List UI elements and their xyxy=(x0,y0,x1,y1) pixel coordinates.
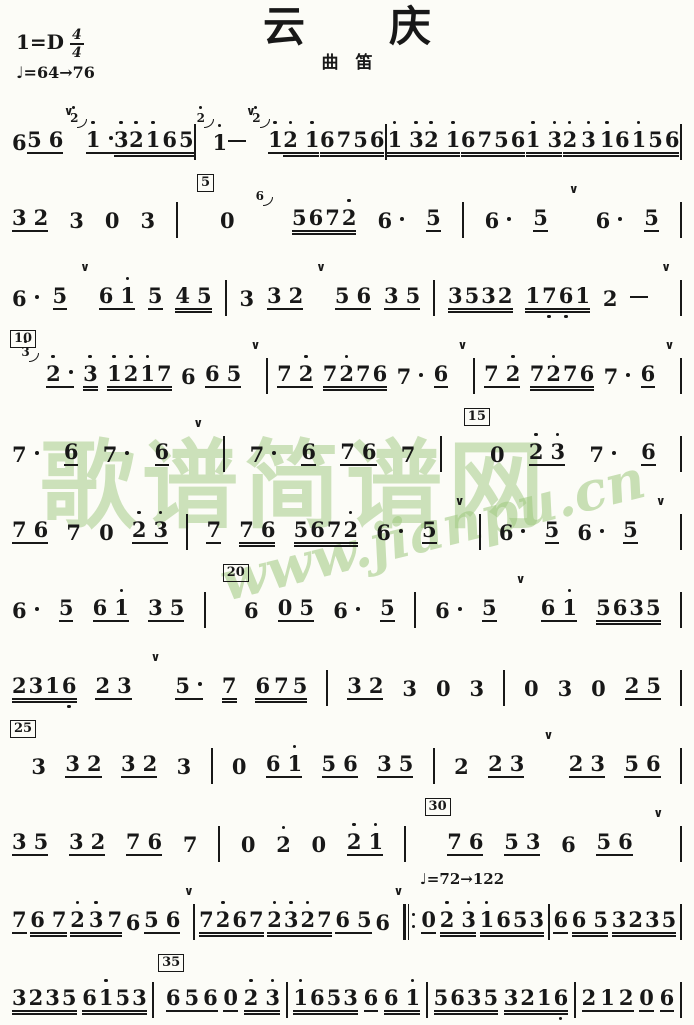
augmentation-dot xyxy=(399,529,403,533)
note-group: 3235 xyxy=(12,986,77,1012)
note-group: 56 xyxy=(27,128,63,154)
note-digit: 6 xyxy=(34,518,49,541)
octave-dot-above xyxy=(88,355,92,359)
note-group: 6 xyxy=(561,833,576,856)
note-digit: 1 xyxy=(406,986,421,1009)
dash-note xyxy=(228,140,246,143)
note-digit: 1 xyxy=(526,128,541,151)
note-group: 56 xyxy=(335,284,371,310)
note-digit: 6 xyxy=(641,440,656,463)
note-group: 6 xyxy=(577,521,605,544)
note-group: 21 xyxy=(424,128,460,154)
note-group: 5 xyxy=(644,206,659,232)
note-group: 7 xyxy=(206,518,221,544)
augmentation-dot xyxy=(626,373,630,377)
note-group: 1 xyxy=(212,131,227,154)
note-digit: 5 xyxy=(662,908,677,931)
barline xyxy=(680,280,682,316)
score-line-9: 253323230615635223∨2356 xyxy=(0,716,694,794)
note-group: 23 xyxy=(569,752,605,778)
barline xyxy=(440,436,442,472)
note-group: 61 xyxy=(384,986,420,1012)
note-group: 1761 xyxy=(525,284,590,310)
note-digit: 5 xyxy=(227,362,242,385)
note-group: 2 xyxy=(454,755,469,778)
note-digit: 6 xyxy=(373,362,388,385)
note-group: 35 xyxy=(148,596,184,622)
note-digit: 6 xyxy=(469,830,484,853)
note-digit: 3 xyxy=(117,674,132,697)
note-digit: 6 xyxy=(618,830,633,853)
augmentation-dot xyxy=(458,607,462,611)
note-group: 6 xyxy=(553,908,568,934)
note-group: 6 xyxy=(126,911,141,934)
note-digit: 1 xyxy=(107,362,122,385)
note-digit: 7 xyxy=(66,521,81,544)
note-group: 1 xyxy=(268,128,283,154)
barline xyxy=(680,982,682,1018)
octave-dot-above xyxy=(254,106,257,109)
score-line-5: 7676∨767671502376 xyxy=(0,404,694,482)
barline xyxy=(204,592,206,628)
note-group: 56 xyxy=(596,830,632,856)
octave-dot-above xyxy=(556,433,560,437)
note-group: 6153 xyxy=(82,986,147,1012)
score-line-2: 3230350656726565∨65 xyxy=(0,170,694,248)
note-digit: 7 xyxy=(542,284,557,307)
note-group: 3 xyxy=(470,677,485,700)
breath-mark-icon: ∨ xyxy=(569,182,579,196)
note-digit: 2 xyxy=(342,206,357,229)
note-digit: 2 xyxy=(603,287,618,310)
note-digit: 5 xyxy=(646,674,661,697)
note-digit: 3 xyxy=(114,128,129,151)
note-digit: 7 xyxy=(325,206,340,229)
note-group: 53 xyxy=(504,830,540,856)
note-digit: 6 xyxy=(434,362,449,385)
octave-dot-above xyxy=(429,121,433,125)
augmentation-dot xyxy=(400,217,404,221)
note-digit: 7 xyxy=(401,443,416,466)
note-group: 5 xyxy=(545,518,560,544)
second-beam-line xyxy=(461,155,526,157)
note-digit: 7 xyxy=(126,830,141,853)
note-digit: 2 xyxy=(244,986,259,1009)
note-digit: 3 xyxy=(347,674,362,697)
second-beam-line xyxy=(222,701,237,703)
note-group: 7276 xyxy=(530,362,595,388)
note-digit: 1 xyxy=(525,284,540,307)
note-digit: 6 xyxy=(375,911,390,934)
note-digit: 5 xyxy=(399,752,414,775)
note-digit: 6 xyxy=(377,209,392,232)
breath-mark-icon: ∨ xyxy=(516,572,526,586)
note-digit: 6 xyxy=(580,362,595,385)
second-beam-line xyxy=(199,935,264,937)
note-digit: 3 xyxy=(629,596,644,619)
score-line-11: 767237656∨72672327656∨♩=72→1220231653665… xyxy=(0,872,694,950)
note-digit: 6 xyxy=(559,284,574,307)
note-group: 6 xyxy=(364,986,379,1012)
note-group: 7 xyxy=(604,365,632,388)
note-digit: 1 xyxy=(293,986,308,1009)
octave-dot-above xyxy=(568,589,572,593)
note-group: 5 xyxy=(623,518,638,544)
note-group: 5672 xyxy=(292,206,357,232)
note-group: 23 xyxy=(529,440,565,466)
note-group: 5635 xyxy=(596,596,661,622)
note-digit: 1 xyxy=(387,128,402,151)
note-digit: 3 xyxy=(581,128,596,151)
note-digit: 5 xyxy=(148,284,163,307)
barline xyxy=(404,826,406,862)
note-group: 0 xyxy=(490,443,505,466)
octave-dot-above xyxy=(126,277,130,281)
octave-dot-above xyxy=(112,355,116,359)
note-digit: 3 xyxy=(265,986,280,1009)
note-digit: 5 xyxy=(596,596,611,619)
note-digit: 1 xyxy=(120,284,135,307)
note-digit: 6 xyxy=(572,908,587,931)
octave-dot-above xyxy=(146,355,150,359)
barline xyxy=(574,982,576,1018)
note-digit: 7 xyxy=(337,128,352,151)
note-digit: 0 xyxy=(436,677,451,700)
note-group: 6 xyxy=(376,521,404,544)
note-digit: 5 xyxy=(623,518,638,541)
note-digit: 5 xyxy=(646,596,661,619)
note-group: 7276 xyxy=(323,362,388,388)
octave-dot-above xyxy=(76,901,80,905)
octave-dot-above xyxy=(221,901,225,905)
note-digit: 7 xyxy=(274,674,289,697)
octave-dot-above xyxy=(51,355,55,359)
note-group: 32 xyxy=(69,830,105,856)
note-digit: 6 xyxy=(12,599,27,622)
note-group: 7 xyxy=(589,443,617,466)
note-group: 2165 xyxy=(129,128,194,154)
note-group: 0 xyxy=(223,986,238,1012)
note-digit: 6 xyxy=(499,521,514,544)
note-digit: 0 xyxy=(223,986,238,1009)
note-digit: 6 xyxy=(309,206,324,229)
note-digit: 0 xyxy=(490,443,505,466)
sheet-music-page: 1=D 4 4 ♩=64→76 云 庆 曲 笛 歌谱简谱网 www.jianpu… xyxy=(0,0,694,1025)
note-group: 3 xyxy=(239,287,254,310)
note-digit: 6 xyxy=(232,908,247,931)
note-group: 6 xyxy=(12,287,40,310)
note-group: 1653 xyxy=(480,908,545,934)
time-signature: 4 4 xyxy=(70,28,84,60)
note-group: 13 xyxy=(526,128,562,154)
note-group: 6 xyxy=(485,209,513,232)
time-signature-top: 4 xyxy=(70,28,84,45)
note-digit: 5 xyxy=(27,128,42,151)
octave-dot-above xyxy=(445,901,449,905)
breath-mark-icon: ∨ xyxy=(316,260,326,274)
note-digit: 7 xyxy=(397,365,412,388)
note-group: 76 xyxy=(12,518,48,544)
note-digit: 7 xyxy=(239,518,254,541)
note-digit: 6 xyxy=(641,362,656,385)
note-digit: 5 xyxy=(513,908,528,931)
note-group: 656 xyxy=(166,986,218,1012)
note-group: 45 xyxy=(175,284,211,310)
note-group: 7 xyxy=(103,443,131,466)
octave-dot-above xyxy=(72,106,75,109)
second-beam-line xyxy=(323,389,388,391)
note-digit: 2 xyxy=(29,986,44,1009)
note-digit: 2 xyxy=(129,128,144,151)
note-group: 76 xyxy=(447,830,483,856)
note-digit: 7 xyxy=(107,908,122,931)
augmentation-dot xyxy=(419,373,423,377)
note-digit: 3 xyxy=(612,908,627,931)
note-digit: 6 xyxy=(613,596,628,619)
note-digit: 5 xyxy=(175,674,190,697)
note-group: 67 xyxy=(30,908,66,934)
note-digit: 0 xyxy=(312,833,327,856)
barline xyxy=(680,124,682,160)
note-group: 5 xyxy=(148,284,163,310)
second-beam-line xyxy=(114,155,129,157)
note-group: 6 xyxy=(12,131,27,154)
note-digit: 1 xyxy=(99,986,114,1009)
note-digit: 5 xyxy=(494,128,509,151)
note-digit: 5 xyxy=(170,596,185,619)
octave-dot-above xyxy=(273,121,277,125)
score-line-1: 656∨213216521∨2121675613216756132316156 xyxy=(0,92,694,170)
breath-mark-icon: ∨ xyxy=(251,338,261,352)
score-line-3: 65∨61545332∨5635353217612∨ xyxy=(0,248,694,326)
breath-mark-icon: ∨ xyxy=(184,884,194,898)
note-group: 2 xyxy=(603,287,618,310)
augmentation-dot xyxy=(600,529,604,533)
note-digit: 5 xyxy=(53,284,68,307)
note-digit: 2 xyxy=(546,362,561,385)
barline xyxy=(426,982,428,1018)
octave-dot-above xyxy=(289,121,293,125)
note-digit: 2 xyxy=(347,830,362,853)
note-digit: 5 xyxy=(624,752,639,775)
note-digit: 7 xyxy=(12,908,27,931)
second-beam-line xyxy=(526,155,562,157)
octave-dot-above xyxy=(349,511,353,515)
note-digit: 6 xyxy=(435,599,450,622)
note-digit: 7 xyxy=(604,365,619,388)
note-digit: 2 xyxy=(301,908,316,931)
second-beam-line xyxy=(12,1013,77,1015)
note-group: 0 xyxy=(421,908,436,934)
barline xyxy=(194,124,196,160)
grace-note: 3 xyxy=(21,345,38,362)
repeat-barline xyxy=(403,904,414,940)
note-digit: 1 xyxy=(600,986,615,1009)
note-digit: 1 xyxy=(114,596,129,619)
note-digit: 5 xyxy=(115,986,130,1009)
note-digit: 3 xyxy=(510,752,525,775)
note-digit: 7 xyxy=(206,518,221,541)
note-group: 3 xyxy=(114,128,129,154)
breath-mark-icon: ∨ xyxy=(80,260,90,274)
note-digit: 7 xyxy=(340,440,355,463)
note-group: 5 xyxy=(482,596,497,622)
note-group: 2 xyxy=(46,362,74,388)
note-digit: 1 xyxy=(446,128,461,151)
note-digit: 6 xyxy=(266,752,281,775)
note-digit: 6 xyxy=(181,365,196,388)
note-digit: 3 xyxy=(12,206,27,229)
second-beam-line xyxy=(175,311,211,313)
instrument-label: 曲 笛 xyxy=(0,48,694,73)
note-group: 6 xyxy=(375,911,390,934)
note-digit: 6 xyxy=(82,986,97,1009)
grace-note: 2 xyxy=(197,111,214,128)
note-digit: 3 xyxy=(590,752,605,775)
note-digit: 2 xyxy=(124,362,139,385)
note-group: 3 xyxy=(69,209,84,232)
score: 656∨213216521∨21216756132167561323161563… xyxy=(0,92,694,1025)
second-beam-line xyxy=(387,155,423,157)
second-beam-line xyxy=(12,701,77,703)
second-beam-line xyxy=(83,389,98,391)
note-digit: 3 xyxy=(12,830,27,853)
note-digit: 5 xyxy=(34,830,49,853)
note-group: 23 xyxy=(132,518,168,544)
note-digit: 2 xyxy=(299,362,314,385)
note-group: 35 xyxy=(12,830,48,856)
breath-mark-icon: ∨ xyxy=(193,416,203,430)
octave-dot-above xyxy=(120,589,124,593)
second-beam-line xyxy=(30,935,66,937)
octave-dot-above xyxy=(151,121,155,125)
note-digit: 3 xyxy=(284,908,299,931)
note-digit: 3 xyxy=(132,986,147,1009)
grace-note: 2 xyxy=(252,111,269,128)
note-digit: 3 xyxy=(384,284,399,307)
note-digit: 1 xyxy=(369,830,384,853)
note-digit: 6 xyxy=(99,284,114,307)
octave-dot-above xyxy=(137,511,141,515)
octave-dot-above xyxy=(306,901,310,905)
note-digit: 6 xyxy=(62,674,77,697)
breath-mark-icon: ∨ xyxy=(661,260,671,274)
note-group: 3 xyxy=(402,677,417,700)
octave-dot-above xyxy=(273,901,277,905)
note-digit: 3 xyxy=(550,440,565,463)
second-beam-line xyxy=(448,311,513,313)
note-digit: 3 xyxy=(409,128,424,151)
note-digit: 3 xyxy=(548,128,563,151)
octave-dot-above xyxy=(467,901,471,905)
octave-dot-above xyxy=(605,121,609,125)
note-group: 21 xyxy=(283,128,319,154)
note-digit: 7 xyxy=(447,830,462,853)
octave-dot-above xyxy=(531,121,535,125)
note-digit: 6 xyxy=(660,986,675,1009)
note-group: 61 xyxy=(541,596,577,622)
note-group: 23 xyxy=(440,908,476,934)
octave-dot-above xyxy=(352,823,356,827)
barline xyxy=(462,202,464,238)
note-digit: 5 xyxy=(644,206,659,229)
note-digit: 3 xyxy=(481,284,496,307)
note-digit: 5 xyxy=(406,284,421,307)
note-group: 35 xyxy=(384,284,420,310)
second-beam-line xyxy=(82,1013,147,1015)
note-digit: 7 xyxy=(157,362,172,385)
grace-tie-curve xyxy=(29,353,39,362)
note-digit: 3 xyxy=(121,752,136,775)
second-beam-line xyxy=(563,155,615,157)
note-digit: 7 xyxy=(589,443,604,466)
note-group: 5 xyxy=(426,206,441,232)
note-group: 32 xyxy=(267,284,303,310)
score-meta: 1=D 4 4 ♩=64→76 xyxy=(16,26,95,82)
note-group: 56 xyxy=(144,908,180,934)
note-digit: 6 xyxy=(166,908,181,931)
note-digit: 6 xyxy=(244,599,259,622)
second-beam-line xyxy=(255,701,307,703)
note-digit: 6 xyxy=(49,128,64,151)
note-digit: 2 xyxy=(339,362,354,385)
note-digit: 1 xyxy=(146,128,161,151)
octave-dot-above xyxy=(374,823,378,827)
note-digit: 6 xyxy=(93,596,108,619)
note-digit: 2 xyxy=(70,908,85,931)
note-group: 6 xyxy=(434,362,449,388)
note-digit: 1 xyxy=(562,596,577,619)
octave-dot-above xyxy=(159,511,163,515)
note-digit: 2 xyxy=(87,752,102,775)
breath-mark-icon: ∨ xyxy=(455,494,465,508)
augmentation-dot xyxy=(507,217,511,221)
note-group: 61 xyxy=(99,284,135,310)
note-digit: 5 xyxy=(184,986,199,1009)
note-digit: 2 xyxy=(132,518,147,541)
note-group: 5 xyxy=(53,284,68,310)
note-group: 5 xyxy=(380,596,395,622)
octave-dot-above xyxy=(24,340,27,343)
octave-dot-above xyxy=(534,433,538,437)
note-digit: 3 xyxy=(45,986,60,1009)
note-digit: 2 xyxy=(628,908,643,931)
key-time-row: 1=D 4 4 xyxy=(16,26,95,58)
note-digit: 1 xyxy=(140,362,155,385)
second-beam-line xyxy=(434,1013,499,1015)
note-digit: 6 xyxy=(166,986,181,1009)
note-digit: 2 xyxy=(276,833,291,856)
note-digit: 0 xyxy=(241,833,256,856)
note-group: 6 xyxy=(377,209,405,232)
note-group: 6 xyxy=(435,599,463,622)
octave-dot-above xyxy=(134,121,138,125)
barline xyxy=(680,202,682,238)
key-signature: 1=D xyxy=(16,30,64,54)
note-group: 56 xyxy=(624,752,660,778)
note-group: 5672 xyxy=(294,518,359,544)
second-beam-line xyxy=(504,1013,569,1015)
note-digit: 6 xyxy=(343,752,358,775)
note-digit: 1 xyxy=(632,128,647,151)
note-digit: 6 xyxy=(148,830,163,853)
note-group: 25 xyxy=(625,674,661,700)
note-digit: 6 xyxy=(461,128,476,151)
barline xyxy=(211,748,213,784)
note-group: 56 xyxy=(322,752,358,778)
note-digit: 5 xyxy=(380,596,395,619)
note-group: 7 xyxy=(250,443,278,466)
